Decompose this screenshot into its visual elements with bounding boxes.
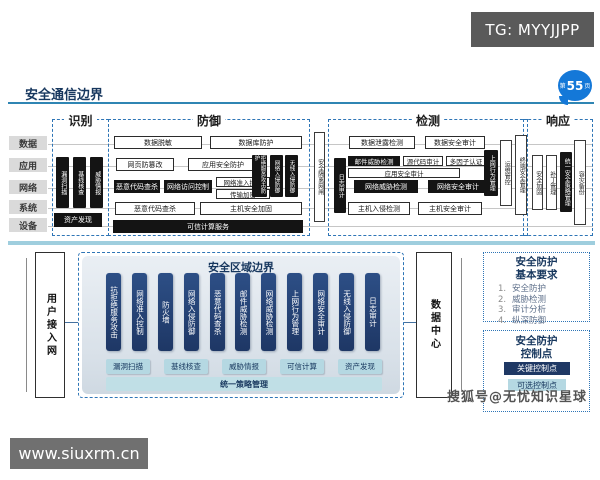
right-bracket-line	[461, 258, 462, 392]
row-label-network: 网络	[8, 179, 48, 195]
page-badge-prefix: 第	[560, 81, 566, 90]
defense-bar-network-ips: 网络入侵防御	[270, 155, 283, 197]
detect-mfa: 多因子认证	[446, 156, 486, 166]
left-bracket-line	[26, 258, 27, 392]
detect-host-intrusion: 主机入侵检测	[348, 202, 410, 215]
section-header-defense: 防御	[108, 112, 310, 129]
defense-malware-scan-net: 恶意代码查杀	[114, 180, 160, 193]
site-watermark: www.siuxrm.cn	[10, 438, 148, 469]
detect-data-leak: 数据泄露检测	[349, 136, 415, 149]
detect-mail-threat: 邮件威胁检测	[348, 156, 400, 166]
connector-right	[404, 322, 416, 323]
data-center-node: 数据中心	[416, 252, 452, 398]
detect-app-audit: 应用安全审计	[348, 168, 460, 178]
security-zone-light-pills: 漏洞扫描 基线核查 威胁情报 可信计算 资产发现	[106, 359, 382, 374]
requirement-item: 4.纵深防御	[484, 316, 589, 327]
zone-pill-antiddos: 抗拒绝服务攻击	[106, 273, 121, 351]
detect-bar-endpoint-mgmt: 终端安全管理	[515, 135, 527, 215]
row-label-data: 数据	[8, 135, 48, 151]
title-divider	[8, 102, 594, 104]
detect-network-threat: 网络威胁检测	[354, 180, 418, 193]
page-badge-suffix: 页	[584, 81, 590, 90]
zone-pill-admission: 网络准入控制	[132, 273, 147, 351]
section-header-respond: 响应	[523, 112, 593, 129]
zone-lpill-trusted-computing: 可信计算	[280, 359, 324, 374]
zone-pill-malware-scan: 恶意代码查杀	[210, 273, 225, 351]
defense-bar-antiddos: 拒绝服务攻击防护	[252, 155, 267, 197]
zone-lpill-asset-discovery: 资产发现	[338, 359, 382, 374]
security-isolation-gateway-bar: 安全隔离网闸	[314, 132, 325, 222]
detect-bar-web-behavior: 上网行为管理	[484, 150, 498, 196]
zone-pill-network-ips: 网络入侵防御	[184, 273, 199, 351]
row-label-application: 应用	[8, 157, 48, 173]
defense-database-protection: 数据库防护	[210, 136, 302, 149]
page-number: 55	[567, 79, 584, 93]
defense-malware-scan-host: 恶意代码查杀	[115, 202, 195, 215]
telegram-watermark-badge: TG: MYYJJPP	[471, 12, 594, 47]
identify-asset-discovery: 资产发现	[54, 213, 102, 227]
row-label-device: 设备	[8, 217, 48, 233]
defense-data-masking: 数据脱敏	[114, 136, 202, 149]
identify-bar-threat-intel: 威胁情报	[90, 157, 103, 208]
requirement-item: 2.威胁检测	[484, 295, 589, 306]
detect-data-audit: 数据安全审计	[425, 136, 485, 149]
section-header-identify: 识别	[52, 112, 109, 129]
requirements-list: 1.安全防护 2.威胁检测 3.审计分析 4.纵深防御	[484, 284, 589, 326]
zone-pill-network-audit: 网络安全审计	[313, 273, 328, 351]
detect-bar-ops-control: 运维管控	[500, 140, 512, 206]
defense-app-security: 应用安全防护	[188, 158, 258, 171]
defense-network-access-control: 网络访问控制	[164, 180, 212, 193]
connector-left	[65, 322, 78, 323]
zone-pill-web-behavior: 上网行为管理	[287, 273, 302, 351]
detect-bar-log-audit: 日志审计	[334, 158, 346, 213]
defense-trusted-computing: 可信计算服务	[113, 220, 303, 233]
defense-web-antitamper: 网页防篡改	[116, 158, 174, 171]
requirement-item: 1.安全防护	[484, 284, 589, 295]
section-header-detect: 检测	[328, 112, 528, 129]
zone-pill-network-threat: 网络威胁检测	[261, 273, 276, 351]
zone-lpill-vuln-scan: 漏洞扫描	[106, 359, 150, 374]
zone-pill-wireless-ips: 无线入侵防御	[339, 273, 354, 351]
zone-pill-firewall: 防火墙	[158, 273, 173, 351]
identify-bar-vuln-scan: 漏洞扫描	[56, 157, 69, 208]
security-matrix-band: 数据 应用 网络 系统 设备 识别 防御 检测 响应 漏洞扫描 基线核查 威胁情…	[8, 110, 595, 243]
user-access-network-node: 用户接入网	[35, 252, 65, 398]
zone-pill-mail-threat: 邮件威胁检测	[235, 273, 250, 351]
sohu-watermark: 搜狐号@无忧知识星球	[447, 386, 587, 405]
requirement-item: 3.审计分析	[484, 305, 589, 316]
respond-bar-hardening: 安全加固	[532, 155, 543, 210]
band-bottom-divider	[8, 241, 595, 245]
page-title: 安全通信边界	[25, 84, 103, 103]
detect-host-audit: 主机安全审计	[418, 202, 482, 215]
unified-policy-bar: 统一策略管理	[106, 377, 382, 391]
detect-source-code-audit: 源代码审计	[403, 156, 443, 166]
row-label-system: 系统	[8, 199, 48, 215]
zone-pill-log-audit: 日志审计	[365, 273, 380, 351]
defense-host-hardening: 主机安全加固	[200, 202, 302, 215]
zone-lpill-baseline: 基线核查	[164, 359, 208, 374]
respond-bar-unified-policy: 统一安全策略管理	[560, 152, 572, 212]
defense-bar-wireless-ips: 无线入侵防御	[285, 155, 298, 197]
detect-network-audit: 网络安全审计	[428, 180, 488, 193]
respond-bar-disaster-backup: 容灾备份	[574, 140, 586, 225]
requirements-title: 安全防护 基本要求	[484, 256, 589, 282]
respond-bar-patch-mgmt: 补丁管理	[546, 155, 557, 210]
page-number-badge: 第 55 页	[558, 70, 592, 101]
slide-page: TG: MYYJJPP 安全通信边界 第 55 页 数据 应用 网络 系统 设备…	[0, 0, 600, 480]
identify-bar-baseline-check: 基线核查	[73, 157, 86, 208]
requirements-panel: 安全防护 基本要求 1.安全防护 2.威胁检测 3.审计分析 4.纵深防御	[483, 252, 590, 322]
control-points-title: 安全防护 控制点	[484, 335, 589, 361]
key-control-points-badge: 关键控制点	[504, 362, 570, 375]
security-zone-pills: 抗拒绝服务攻击 网络准入控制 防火墙 网络入侵防御 恶意代码查杀 邮件威胁检测 …	[106, 273, 380, 351]
zone-lpill-threat-intel: 威胁情报	[222, 359, 266, 374]
